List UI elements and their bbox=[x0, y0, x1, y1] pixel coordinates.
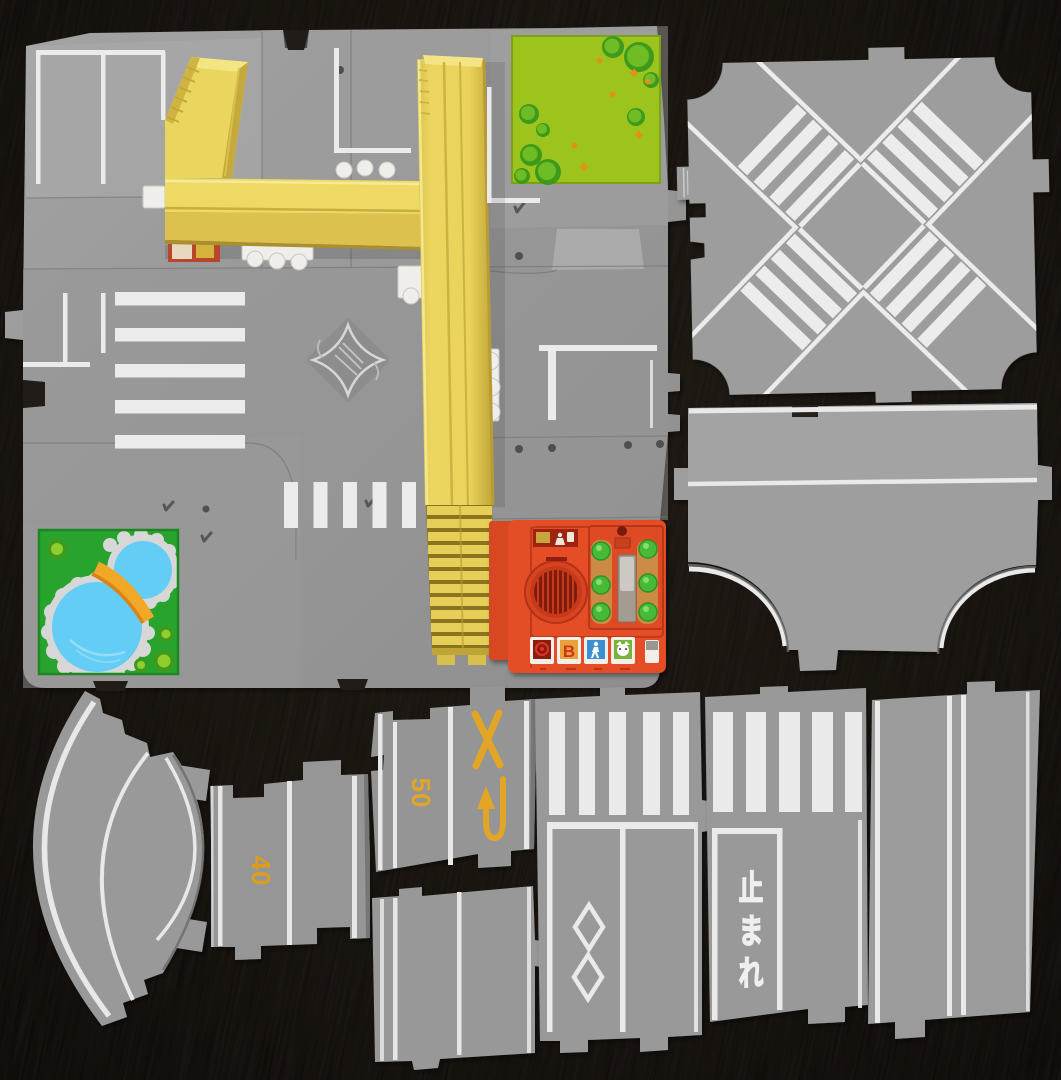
svg-text:50: 50 bbox=[406, 778, 436, 809]
svg-text:B: B bbox=[563, 642, 575, 661]
svg-text:止: 止 bbox=[739, 870, 763, 908]
svg-text:ま: ま bbox=[739, 913, 763, 951]
svg-text:40: 40 bbox=[246, 856, 276, 887]
svg-text:れ: れ bbox=[739, 955, 764, 993]
